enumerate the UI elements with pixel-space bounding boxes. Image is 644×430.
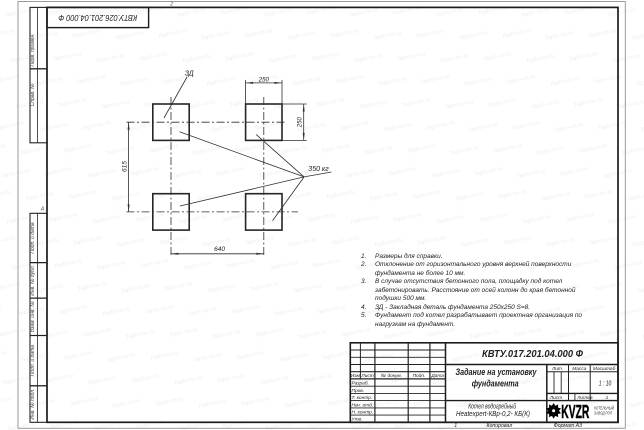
svg-text:А: А bbox=[40, 207, 45, 213]
svg-text:Масса: Масса bbox=[572, 366, 587, 372]
svg-text:Heatexpert-КВр-0,2- КБ(К): Heatexpert-КВр-0,2- КБ(К) bbox=[456, 411, 530, 418]
svg-text:Лит.: Лит. bbox=[551, 366, 563, 372]
svg-text:Взам. инв. №: Взам. инв. № bbox=[30, 301, 36, 333]
svg-text:640: 640 bbox=[214, 246, 225, 253]
svg-text:KVZR: KVZR bbox=[561, 401, 589, 422]
svg-text:ЗД: ЗД bbox=[185, 71, 194, 78]
svg-text:1 : 10: 1 : 10 bbox=[599, 380, 612, 387]
svg-text:Формат А3: Формат А3 bbox=[554, 423, 582, 429]
svg-text:Копировал: Копировал bbox=[486, 423, 512, 429]
svg-text:Подп. и дата: Подп. и дата bbox=[30, 222, 36, 254]
svg-text:фундамента: фундамента bbox=[472, 379, 519, 390]
svg-text:250: 250 bbox=[298, 117, 304, 129]
svg-text:Изм: Изм bbox=[351, 373, 361, 379]
svg-text:КВТУ.026.201.04.000 Ф: КВТУ.026.201.04.000 Ф bbox=[58, 13, 138, 22]
svg-text:Подп.: Подп. bbox=[413, 373, 426, 379]
svg-text:№ докум.: № докум. bbox=[381, 373, 402, 379]
svg-text:Разраб.: Разраб. bbox=[352, 381, 369, 387]
svg-text:Инв. № дубл.: Инв. № дубл. bbox=[30, 265, 36, 296]
svg-text:Котел водогрейный: Котел водогрейный bbox=[468, 403, 516, 411]
svg-text:1: 1 bbox=[454, 423, 457, 429]
svg-text:Утв.: Утв. bbox=[352, 417, 363, 423]
svg-text:Перв. примен.: Перв. примен. bbox=[30, 33, 36, 66]
svg-text:615: 615 bbox=[122, 161, 129, 172]
svg-text:2: 2 bbox=[169, 1, 173, 7]
svg-text:Лист: Лист bbox=[549, 395, 562, 401]
svg-text:КВТУ.017.201.04.000 Ф: КВТУ.017.201.04.000 Ф bbox=[482, 348, 584, 360]
svg-text:Лист: Лист bbox=[360, 373, 373, 379]
svg-text:ЗАВОД РЭП: ЗАВОД РЭП bbox=[594, 411, 613, 416]
svg-text:КОТЕЛЬНЫЙ: КОТЕЛЬНЫЙ bbox=[594, 405, 615, 410]
svg-text:Справ. №: Справ. № bbox=[30, 83, 36, 106]
svg-text:350 кг: 350 кг bbox=[308, 166, 329, 173]
svg-text:Пров.: Пров. bbox=[352, 388, 365, 394]
svg-text:Масштаб: Масштаб bbox=[593, 366, 616, 372]
svg-text:Задание на установку: Задание на установку bbox=[456, 367, 537, 378]
svg-text:Т. контр.: Т. контр. bbox=[352, 395, 373, 401]
svg-text:Подп. и дата: Подп. и дата bbox=[30, 345, 36, 377]
svg-text:250: 250 bbox=[258, 78, 270, 84]
svg-text:1: 1 bbox=[606, 395, 609, 401]
svg-text:Н. контр.: Н. контр. bbox=[352, 410, 374, 416]
svg-text:Дата: Дата bbox=[430, 373, 444, 379]
svg-text:Нач. отд.: Нач. отд. bbox=[352, 402, 374, 408]
svg-text:Инв. № подл.: Инв. № подл. bbox=[30, 389, 36, 420]
